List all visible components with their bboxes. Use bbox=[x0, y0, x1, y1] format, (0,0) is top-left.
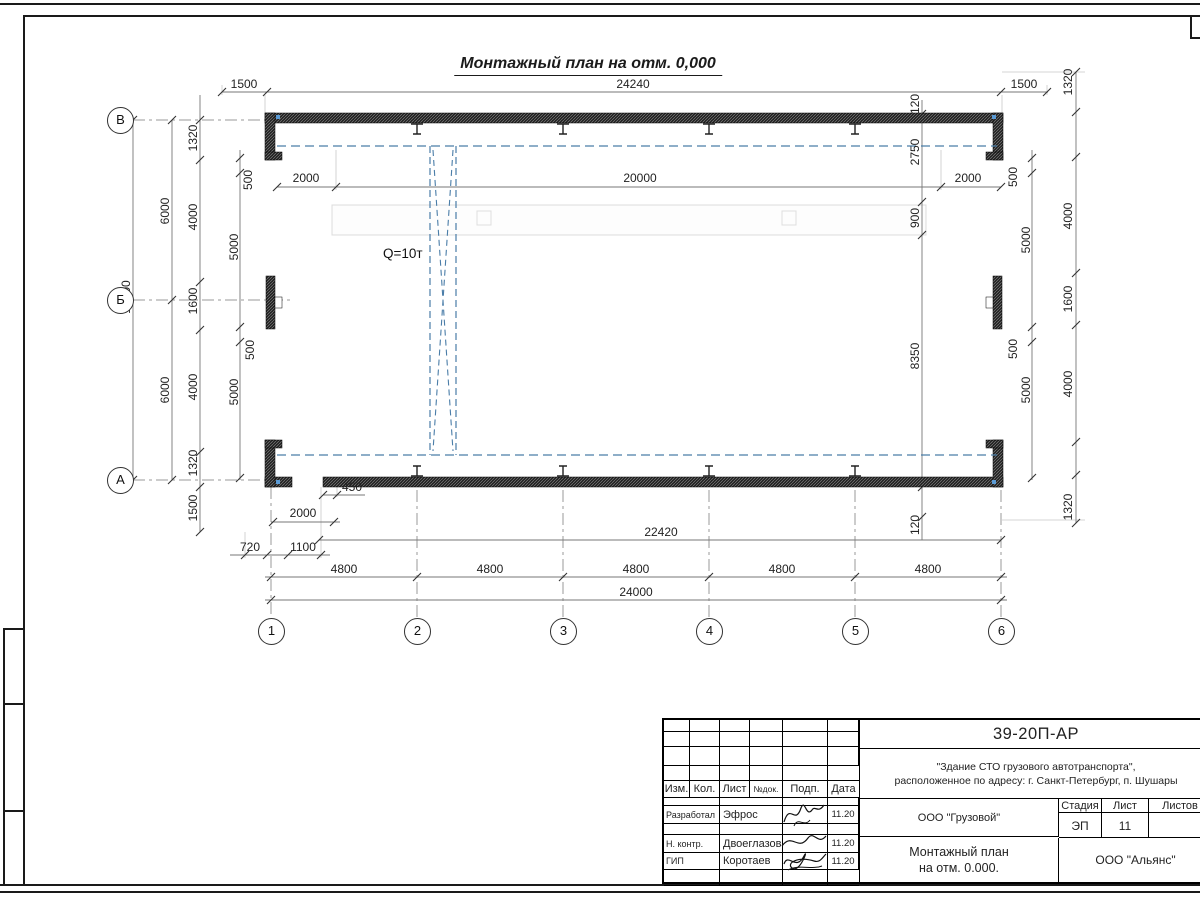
sheets-value bbox=[1149, 813, 1200, 838]
stage-value: ЭП bbox=[1059, 813, 1102, 838]
sheet-title-line-2: на отм. 0.000. bbox=[919, 860, 999, 876]
crane-capacity-label: Q=10т bbox=[383, 246, 423, 261]
hdr-izm: Изм. bbox=[664, 781, 690, 798]
stage-label: Стадия bbox=[1059, 799, 1102, 813]
dim-right-5000-top: 5000 bbox=[1020, 227, 1032, 254]
signature-ncontr-gip bbox=[778, 830, 830, 876]
dim-bot-22420: 22420 bbox=[644, 526, 677, 538]
dim-inner-20000: 20000 bbox=[623, 172, 656, 184]
dim-bot-4800-4: 4800 bbox=[769, 563, 796, 575]
hdr-podp: Подп. bbox=[783, 781, 828, 798]
row-developer-role: Разработал bbox=[664, 806, 720, 824]
title-block: Изм. Кол. Лист №док. Подп. Дата Разработ… bbox=[662, 718, 1200, 884]
dim-bot-4800-2: 4800 bbox=[477, 563, 504, 575]
dim-mid-120-bot: 120 bbox=[909, 515, 921, 535]
row-gip-date: 11.20 bbox=[828, 853, 859, 870]
grid-bubble-row-a: А bbox=[107, 467, 134, 494]
dim-left-5000-top: 5000 bbox=[228, 234, 240, 261]
dim-right-5000-bot: 5000 bbox=[1020, 377, 1032, 404]
design-company: ООО "Альянс" bbox=[1059, 838, 1200, 882]
hdr-list: Лист bbox=[720, 781, 750, 798]
grid-bubble-col-4: 4 bbox=[696, 618, 723, 645]
row-ncontr-name: Двоеглазов bbox=[720, 835, 783, 853]
project-line-1: "Здание СТО грузового автотранспорта", bbox=[936, 760, 1135, 774]
dim-bot-1100: 1100 bbox=[290, 541, 316, 553]
row-ncontr-date: 11.20 bbox=[828, 835, 859, 853]
grid-bubble-col-6: 6 bbox=[988, 618, 1015, 645]
signature-developer bbox=[780, 798, 828, 830]
dim-left-5000-bot: 5000 bbox=[228, 379, 240, 406]
document-code: 39-20П-АР bbox=[860, 720, 1200, 749]
dim-top-24240: 24240 bbox=[616, 78, 649, 90]
client-org: ООО "Грузовой" bbox=[860, 799, 1059, 837]
dim-bot-2000: 2000 bbox=[290, 507, 317, 519]
dim-right-500-bot: 500 bbox=[1007, 339, 1019, 359]
dim-left-500-bot: 500 bbox=[244, 340, 256, 360]
dim-left-1600: 1600 bbox=[187, 288, 199, 315]
dim-left-4000-top: 4000 bbox=[187, 204, 199, 231]
dim-top-1500-left: 1500 bbox=[231, 78, 258, 90]
crane-girder-band bbox=[332, 205, 926, 235]
dim-left-1320-top: 1320 bbox=[187, 125, 199, 152]
revision-header-row: Изм. Кол. Лист №док. Подп. Дата bbox=[664, 781, 859, 798]
dim-left-6000-b: 6000 bbox=[159, 377, 171, 404]
title-block-revision-table: Изм. Кол. Лист №док. Подп. Дата Разработ… bbox=[664, 720, 860, 882]
dim-inner-2000-left: 2000 bbox=[293, 172, 320, 184]
wall-sections bbox=[265, 113, 1003, 487]
dim-right-500-top: 500 bbox=[1007, 167, 1019, 187]
hdr-data: Дата bbox=[828, 781, 859, 798]
stage-sheet-table: Стадия Лист Листов ЭП 11 bbox=[1059, 799, 1200, 838]
grid-bubble-col-5: 5 bbox=[842, 618, 869, 645]
dim-inner-2000-right: 2000 bbox=[955, 172, 982, 184]
dim-bot-4800-5: 4800 bbox=[915, 563, 942, 575]
hdr-ndok: №док. bbox=[750, 781, 783, 798]
dim-mid-8350: 8350 bbox=[909, 343, 921, 370]
dim-top-1500-right: 1500 bbox=[1011, 78, 1038, 90]
dim-mid-2750: 2750 bbox=[909, 139, 921, 166]
title-block-main: 39-20П-АР "Здание СТО грузового автотран… bbox=[860, 720, 1200, 882]
dim-right-1320-bot: 1320 bbox=[1062, 494, 1074, 521]
dim-left-4000-bot: 4000 bbox=[187, 374, 199, 401]
dim-bot-4800-1: 4800 bbox=[331, 563, 358, 575]
grid-bubble-col-2: 2 bbox=[404, 618, 431, 645]
dim-right-1320-top: 1320 bbox=[1062, 69, 1074, 96]
sheet-value: 11 bbox=[1102, 813, 1149, 838]
dim-mid-900: 900 bbox=[909, 208, 921, 228]
dim-bot-24000: 24000 bbox=[619, 586, 652, 598]
row-developer-date: 11.20 bbox=[828, 806, 859, 824]
grid-bubble-row-v: В bbox=[107, 107, 134, 134]
dim-right-4000-top: 4000 bbox=[1062, 203, 1074, 230]
row-ncontr-role: Н. контр. bbox=[664, 835, 720, 853]
project-description: "Здание СТО грузового автотранспорта", р… bbox=[860, 749, 1200, 799]
project-line-2: расположенное по адресу: г. Санкт-Петерб… bbox=[895, 774, 1178, 788]
hdr-kol: Кол. bbox=[690, 781, 720, 798]
crane-outline bbox=[277, 146, 997, 455]
sheet-title-cell: Монтажный план на отм. 0.000. bbox=[860, 838, 1059, 882]
dim-left-500-top: 500 bbox=[242, 170, 254, 190]
dim-right-1600: 1600 bbox=[1062, 286, 1074, 313]
grid-bubble-col-1: 1 bbox=[258, 618, 285, 645]
row-gip-role: ГИП bbox=[664, 853, 720, 870]
dim-left-1320-bot: 1320 bbox=[187, 450, 199, 477]
grid-axis-lines bbox=[133, 120, 1001, 618]
row-developer-name: Эфрос bbox=[720, 806, 783, 824]
dim-bot-450: 450 bbox=[342, 481, 362, 493]
dim-left-6000-a: 6000 bbox=[159, 198, 171, 225]
sheet-label: Лист bbox=[1102, 799, 1149, 813]
grid-bubble-row-b: Б bbox=[107, 287, 134, 314]
dim-left-1500: 1500 bbox=[187, 495, 199, 522]
dim-right-4000-bot: 4000 bbox=[1062, 371, 1074, 398]
dim-bot-720: 720 bbox=[240, 541, 260, 553]
row-gip-name: Коротаев bbox=[720, 853, 783, 870]
screenshot-root: { "sheet": { "drawing_title": "Монтажный… bbox=[0, 0, 1200, 900]
grid-bubble-col-3: 3 bbox=[550, 618, 577, 645]
dim-bot-4800-3: 4800 bbox=[623, 563, 650, 575]
sheet-title-line-1: Монтажный план bbox=[909, 844, 1009, 860]
dim-mid-120-top: 120 bbox=[909, 94, 921, 114]
sheets-label: Листов bbox=[1149, 799, 1200, 813]
